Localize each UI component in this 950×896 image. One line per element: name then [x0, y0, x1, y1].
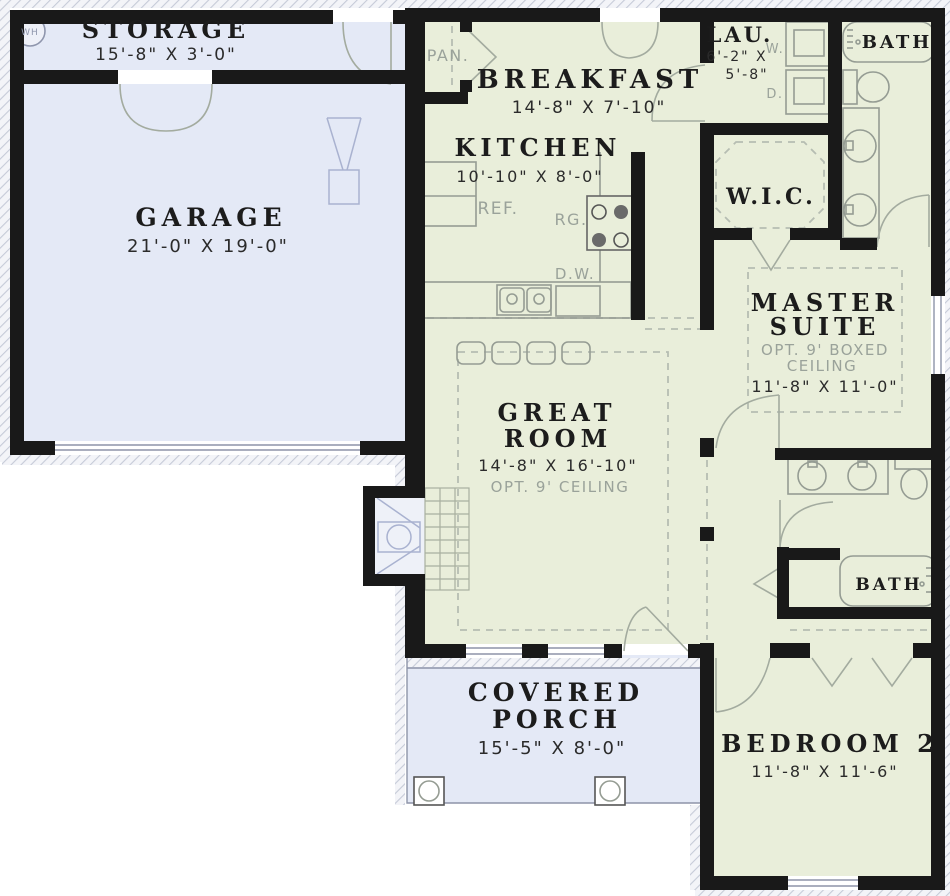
wic-label: W.I.C. — [725, 184, 816, 210]
master-suite-dims: 11'-8" X 11'-0" — [751, 377, 898, 396]
great-room-window — [466, 644, 522, 658]
garage-floor — [24, 84, 405, 441]
breakfast-dims: 14'-8" X 7'-10" — [512, 98, 667, 118]
pantry-label: PAN. — [427, 46, 470, 65]
bedroom2-label: BEDROOM 2 — [721, 729, 939, 758]
water-heater-label: WH — [21, 28, 39, 38]
bedroom2-window — [788, 876, 858, 890]
great-room-note: OPT. 9' CEILING — [491, 478, 630, 496]
bath2-label: BATH — [855, 575, 922, 595]
laundry-dims-1: 6'-2" X — [706, 49, 767, 65]
great-room-label-2: ROOM — [504, 424, 612, 453]
master-suite-label-2: SUITE — [770, 312, 881, 341]
porch-label-1: COVERED — [468, 678, 644, 707]
porch-dims: 15'-5" X 8'-0" — [478, 738, 626, 759]
washer-label: W. — [766, 42, 785, 57]
garage-dims: 21'-0" X 19'-0" — [127, 236, 289, 257]
firebox-floor — [375, 496, 425, 576]
garage-label: GARAGE — [135, 203, 286, 232]
fridge-label: REF. — [477, 199, 518, 219]
breakfast-label: BREAKFAST — [477, 65, 703, 95]
laundry-label: LAU. — [707, 22, 774, 47]
great-room-window — [548, 644, 604, 658]
range-label: RG. — [554, 210, 587, 229]
floor-plan-drawing: WH STORAGE 15'-8" X 3'-0" GARAGE 21'-0" … — [0, 0, 950, 896]
storage-dims: 15'-8" X 3'-0" — [95, 45, 237, 65]
laundry-dims-2: 5'-8" — [725, 67, 768, 83]
master-suite-note-2: CEILING — [787, 357, 858, 375]
great-room-dims: 14'-8" X 16'-10" — [478, 456, 637, 475]
kitchen-dims: 10'-10" X 8'-0" — [456, 167, 603, 186]
dryer-label: D. — [766, 87, 783, 102]
bedroom2-dims: 11'-8" X 11'-6" — [751, 762, 898, 781]
garage-door — [55, 441, 360, 455]
porch-label-2: PORCH — [492, 705, 622, 734]
master-bath-label: BATH — [862, 32, 933, 53]
bedroom2-floor — [714, 644, 931, 876]
master-suite-window — [931, 296, 945, 374]
storage-label: STORAGE — [82, 15, 250, 44]
great-room-label-1: GREAT — [498, 398, 617, 427]
dishwasher-label: D.W. — [555, 265, 595, 283]
kitchen-label: KITCHEN — [455, 133, 622, 162]
floor-plan: WH STORAGE 15'-8" X 3'-0" GARAGE 21'-0" … — [0, 0, 950, 896]
